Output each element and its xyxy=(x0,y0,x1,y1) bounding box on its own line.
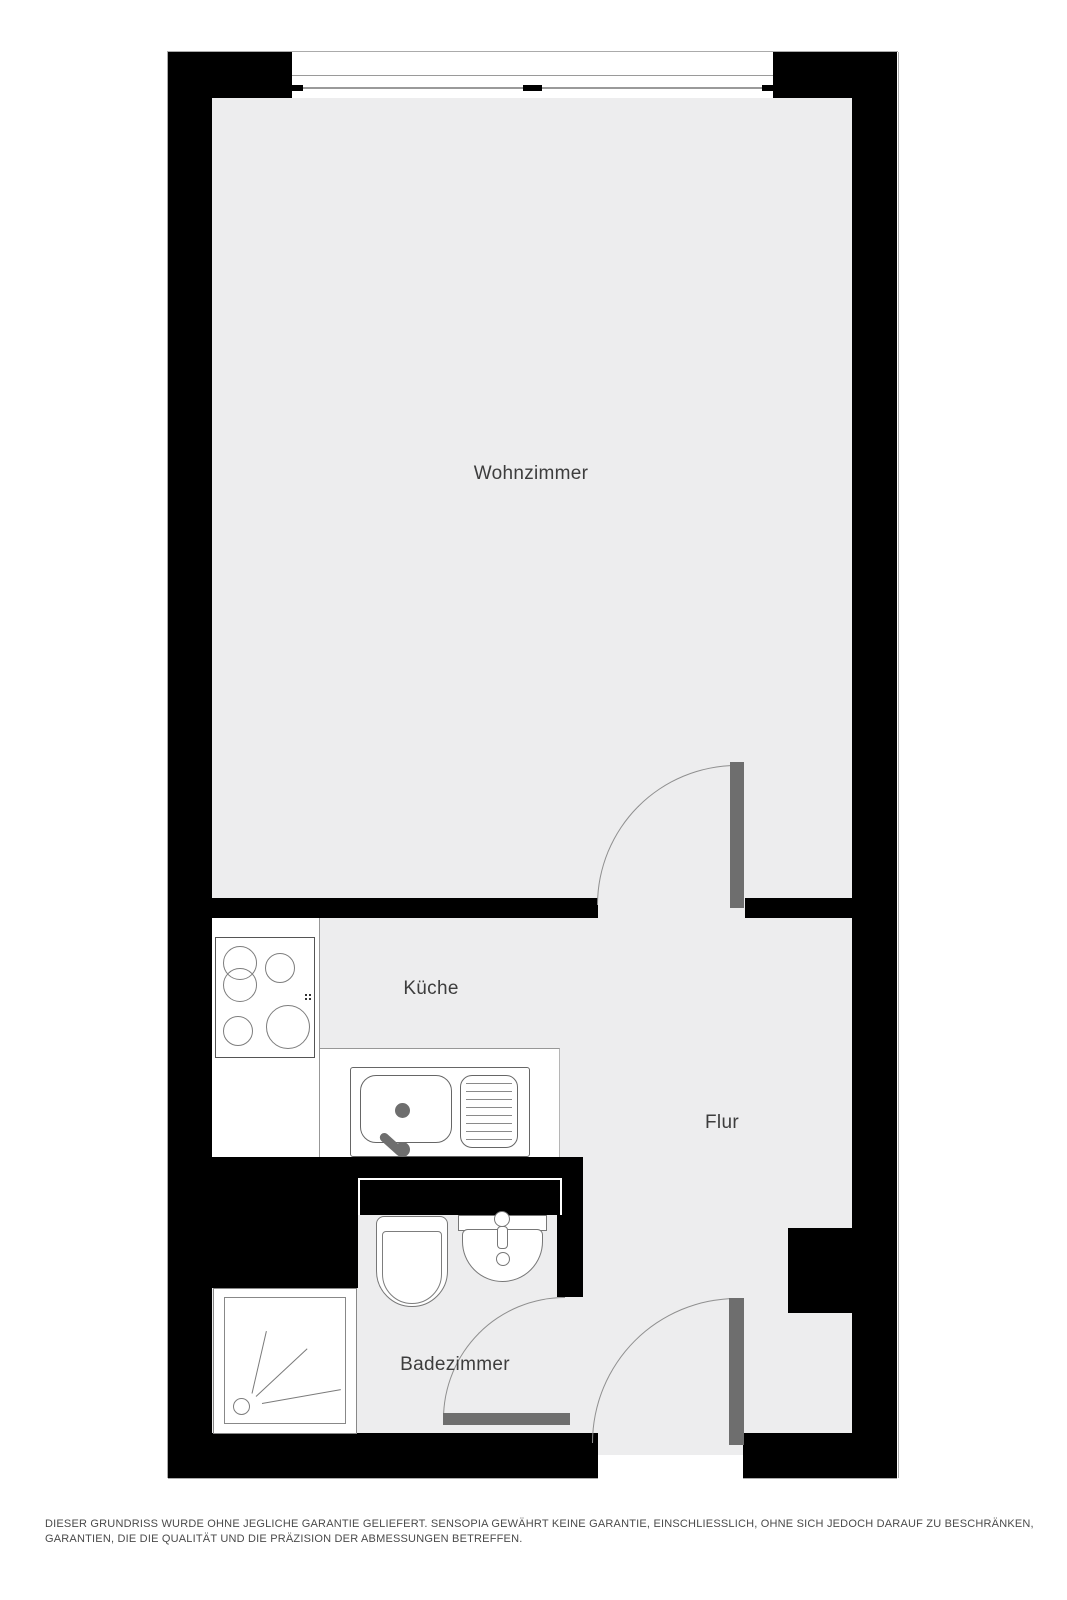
wall-bottom-left xyxy=(168,1433,598,1478)
bathroom-sink-drain xyxy=(496,1252,510,1266)
drainboard-ridge xyxy=(466,1139,512,1140)
kitchen-sink-drain xyxy=(395,1103,410,1118)
stove-knob-icon xyxy=(309,998,311,1000)
floorplan-page: Wohnzimmer Küche Flur Badezimmer DIESER … xyxy=(0,0,1067,1600)
wall-wohnzimmer-right-segment xyxy=(745,898,852,918)
room-label-wohnzimmer: Wohnzimmer xyxy=(431,463,631,485)
stove-knob-icon xyxy=(309,994,311,996)
window-tick-center xyxy=(523,85,542,91)
wall-bath-block xyxy=(168,1157,358,1288)
bathroom-faucet-head xyxy=(494,1211,510,1227)
stove-knob-icon xyxy=(305,998,307,1000)
burner-icon xyxy=(265,953,295,983)
bath-outline-left xyxy=(358,1178,360,1215)
door-leaf-entry xyxy=(729,1298,744,1445)
outline-right xyxy=(898,52,899,1478)
bath-outline-top xyxy=(358,1178,560,1180)
drainboard-ridge xyxy=(466,1115,512,1116)
drainboard-ridge xyxy=(466,1099,512,1100)
wall-right xyxy=(852,52,897,1478)
drainboard-ridge xyxy=(466,1107,512,1108)
window-tick-left xyxy=(292,85,303,91)
drainboard-ridge xyxy=(466,1123,512,1124)
kitchen-sink-faucet-knob xyxy=(395,1142,410,1157)
bath-outline-right xyxy=(560,1178,562,1215)
outline-left xyxy=(167,52,168,1478)
door-leaf-wohnzimmer xyxy=(730,762,744,908)
drainboard-ridge xyxy=(466,1131,512,1132)
burner-icon xyxy=(223,968,257,1002)
drainboard-ridge xyxy=(466,1091,512,1092)
wall-wohnzimmer-left-segment xyxy=(212,898,598,918)
drainboard-ridge xyxy=(466,1083,512,1084)
outline-bottom-right xyxy=(743,1478,897,1479)
wall-bottom-right xyxy=(743,1433,897,1478)
room-label-flur: Flur xyxy=(622,1112,822,1134)
bathroom-faucet-stem xyxy=(497,1226,508,1249)
burner-icon xyxy=(266,1005,310,1049)
window-tick-right xyxy=(762,85,773,91)
wall-flur-pilaster xyxy=(788,1228,852,1313)
kitchen-sink-drainboard xyxy=(460,1075,518,1148)
shower-drain xyxy=(233,1398,250,1415)
burner-icon xyxy=(223,1016,253,1046)
disclaimer-text: DIESER GRUNDRISS WURDE OHNE JEGLICHE GAR… xyxy=(45,1517,1045,1547)
window-glass-line-outer xyxy=(292,75,773,76)
room-label-kueche: Küche xyxy=(331,978,531,1000)
floor-wohnzimmer xyxy=(212,98,852,898)
toilet-seat xyxy=(382,1231,442,1304)
door-leaf-badezimmer xyxy=(443,1413,570,1425)
room-label-badezimmer: Badezimmer xyxy=(355,1354,555,1376)
stove-knob-icon xyxy=(305,994,307,996)
outline-bottom-left xyxy=(168,1478,598,1479)
window xyxy=(292,52,773,98)
